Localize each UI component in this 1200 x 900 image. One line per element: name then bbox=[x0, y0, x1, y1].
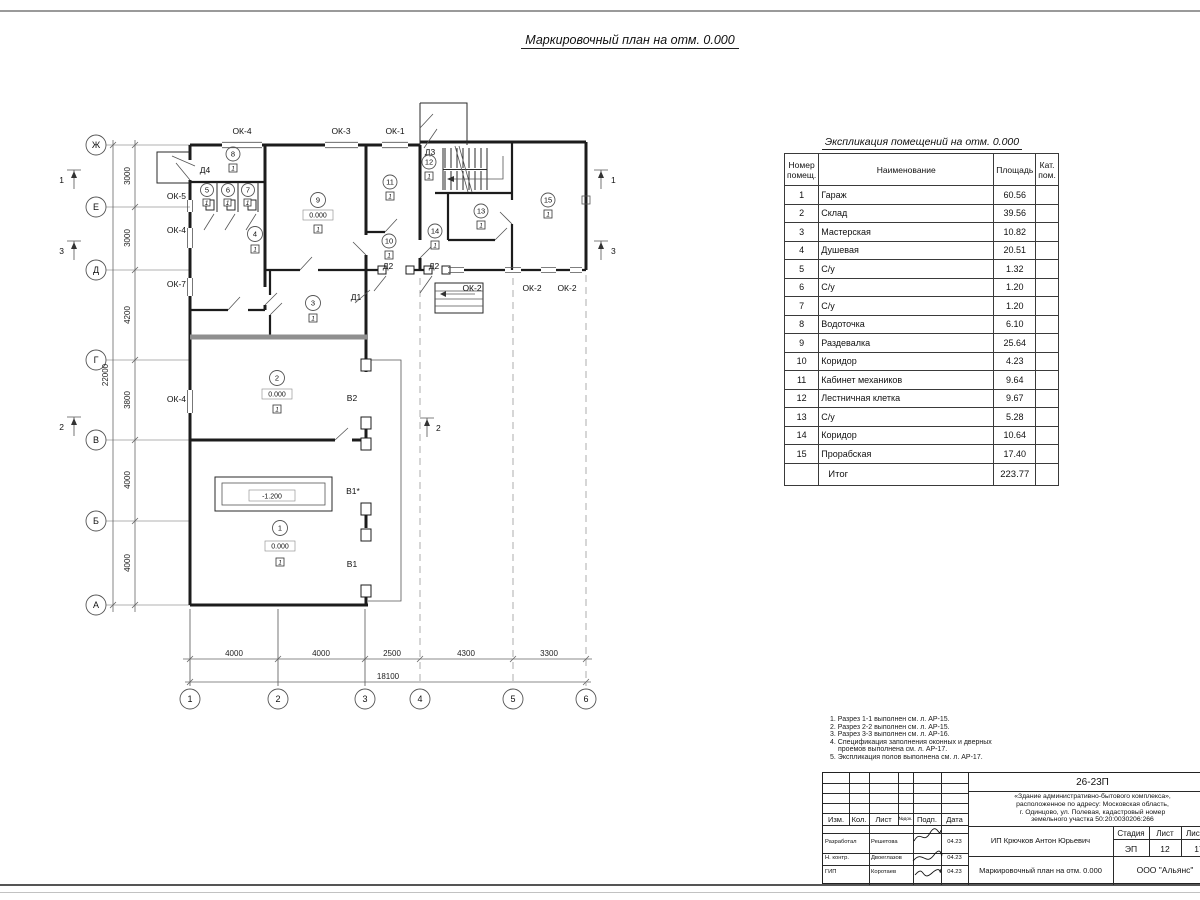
stamp-line bbox=[968, 826, 1200, 827]
col-header-number: Номер помещ. bbox=[785, 154, 819, 186]
sheet-number: 12 bbox=[1149, 844, 1181, 854]
doc-number: 26-23П bbox=[968, 777, 1200, 788]
stamp-col-izm: Изм. bbox=[823, 815, 849, 824]
steps-arrow-head bbox=[440, 291, 446, 297]
door-label: Д4 bbox=[200, 165, 211, 175]
walls bbox=[190, 142, 586, 605]
room-number: 13 bbox=[477, 207, 485, 216]
table-row: 13С/у5.28 bbox=[785, 408, 1059, 427]
table-row: 2Склад39.56 bbox=[785, 204, 1059, 223]
object-line: земельного участка 50:20:0030206:266 bbox=[970, 816, 1200, 824]
table-row: 7С/у1.20 bbox=[785, 297, 1059, 316]
object-line: «Здание административно-бытового комплек… bbox=[970, 793, 1200, 801]
signature bbox=[915, 869, 941, 876]
stage-value: ЭП bbox=[1113, 844, 1149, 854]
stamp-name: Коротаев bbox=[871, 869, 896, 875]
dim-bottom-total: 18100 bbox=[377, 672, 400, 681]
stamp-line bbox=[823, 833, 968, 834]
axis-bubbles: Ж Е Д Г В Б А 1 2 3 4 5 6 bbox=[86, 135, 596, 709]
table-row: 10Коридор4.23 bbox=[785, 352, 1059, 371]
room-number: 7 bbox=[246, 186, 250, 195]
room-number: 9 bbox=[316, 196, 320, 205]
floor-type-mark: 1 bbox=[278, 560, 282, 567]
window-label: ОК-1 bbox=[385, 126, 404, 136]
room-number: 6 bbox=[226, 186, 230, 195]
stamp-col-podp: Подп. bbox=[913, 815, 941, 824]
title-block: Изм. Кол. Лист №док. Подп. Дата Разработ… bbox=[822, 772, 1200, 884]
company-name: ООО "Альянс" bbox=[1113, 865, 1200, 875]
floor-type-mark: 1 bbox=[246, 200, 250, 207]
dim-bottom: 2500 bbox=[383, 649, 401, 658]
gate-label: В1* bbox=[346, 486, 360, 496]
pit-level-mark: -1.200 bbox=[249, 490, 295, 501]
stamp-line bbox=[823, 865, 968, 866]
staircase bbox=[443, 146, 503, 192]
gate-label: В2 bbox=[347, 393, 358, 403]
room-number: 11 bbox=[386, 178, 394, 187]
table-row: 1Гараж60.56 bbox=[785, 186, 1059, 205]
note-line: 5. Экспликация полов выполнена см. л. АР… bbox=[830, 754, 1008, 762]
axis-row-label: В bbox=[93, 435, 99, 445]
stamp-line bbox=[1113, 839, 1200, 840]
note-line: 2. Разрез 2-2 выполнен см. л. АР-15. bbox=[830, 724, 1008, 732]
signature bbox=[914, 829, 941, 841]
stamp-col-kol: Кол. bbox=[849, 815, 869, 824]
explication-header-row: Номер помещ. Наименование Площадь Кат. п… bbox=[785, 154, 1059, 186]
signatures bbox=[911, 827, 943, 885]
sheet-label: Лист bbox=[1149, 829, 1181, 838]
table-row: 9Раздевалка25.64 bbox=[785, 334, 1059, 353]
floor-type-mark: 1 bbox=[433, 243, 437, 250]
floor-type-mark: 1 bbox=[253, 247, 257, 254]
axis-col-label: 6 bbox=[583, 694, 588, 704]
axis-row-label: Е bbox=[93, 202, 99, 212]
stamp-line bbox=[823, 793, 968, 794]
note-line: 1. Разрез 1-1 выполнен см. л. АР-15. bbox=[830, 716, 1008, 724]
dim-left: 4200 bbox=[123, 306, 132, 324]
table-row: 5С/у1.32 bbox=[785, 260, 1059, 279]
sheet-edge-line bbox=[0, 892, 1200, 893]
stamp-role: Н. контр. bbox=[825, 855, 849, 861]
stamp-line bbox=[823, 853, 968, 854]
floor-type-mark: 1 bbox=[226, 200, 230, 207]
dim-left: 4000 bbox=[123, 471, 132, 489]
floor-type-mark: 1 bbox=[205, 200, 209, 207]
col-header-category: Кат. пом. bbox=[1036, 154, 1059, 186]
table-row: 3Мастерская10.82 bbox=[785, 223, 1059, 242]
level-mark: 0.000 bbox=[271, 544, 289, 551]
door-label: Д2 bbox=[383, 261, 394, 271]
axis-row-label: Ж bbox=[92, 140, 101, 150]
gate-label: В1 bbox=[347, 559, 358, 569]
stamp-date: 04.23 bbox=[941, 839, 968, 845]
dim-bottom: 4300 bbox=[457, 649, 475, 658]
door-label: Д2 bbox=[429, 261, 440, 271]
axis-row-label: А bbox=[93, 600, 99, 610]
table-row: 6С/у1.20 bbox=[785, 278, 1059, 297]
level-mark: -1.200 bbox=[262, 494, 282, 501]
col-header-area: Площадь bbox=[994, 154, 1036, 186]
room-number: 15 bbox=[544, 196, 552, 205]
axis-row-label: Д bbox=[93, 265, 99, 275]
stamp-col-list: Лист bbox=[869, 815, 898, 824]
section-mark-label: 3 bbox=[59, 246, 64, 256]
room-number: 12 bbox=[425, 158, 433, 167]
stamp-line bbox=[823, 813, 968, 814]
axis-col-label: 2 bbox=[275, 694, 280, 704]
room-number: 14 bbox=[431, 227, 439, 236]
stamp-date: 04.23 bbox=[941, 855, 968, 861]
dim-left: 4000 bbox=[123, 554, 132, 572]
window-label: ОК-2 bbox=[462, 283, 481, 293]
door-leaves bbox=[172, 114, 512, 440]
sheets-total: 17 bbox=[1181, 844, 1200, 854]
stamp-line bbox=[968, 791, 1200, 792]
room-number: 4 bbox=[253, 230, 257, 239]
window-label: ОК-2 bbox=[557, 283, 576, 293]
stamp-sheet-title: Маркировочный план на отм. 0.000 bbox=[968, 866, 1113, 875]
notes-block: 1. Разрез 1-1 выполнен см. л. АР-15. 2. … bbox=[830, 716, 1008, 761]
dim-bottom: 3300 bbox=[540, 649, 558, 658]
room-number: 1 bbox=[278, 524, 282, 533]
explication-title: Экспликация помещений на отм. 0.000 bbox=[790, 132, 1054, 150]
stage-label: Стадия bbox=[1113, 829, 1149, 838]
stamp-line bbox=[968, 856, 1200, 857]
table-row: 12Лестничная клетка9.67 bbox=[785, 389, 1059, 408]
section-mark-label: 2 bbox=[59, 422, 64, 432]
room-number: 3 bbox=[311, 299, 315, 308]
section-mark-label: 1 bbox=[611, 175, 616, 185]
gate-labels: В2 В1* В1 bbox=[346, 393, 360, 569]
dim-left: 3000 bbox=[123, 229, 132, 247]
stamp-name: Двоеглазов bbox=[871, 855, 902, 861]
floor-type-mark: 1 bbox=[231, 166, 235, 173]
room-number: 5 bbox=[205, 186, 209, 195]
table-total-row: Итог223.77 bbox=[785, 463, 1059, 485]
section-mark-label: 1 bbox=[59, 175, 64, 185]
window-label: ОК-3 bbox=[331, 126, 350, 136]
section-marks: 1 3 2 1 3 2 bbox=[59, 170, 616, 437]
axis-col-label: 4 bbox=[417, 694, 422, 704]
dim-left-total: 22000 bbox=[101, 363, 110, 386]
object-line: расположенное по адресу: Московская обла… bbox=[970, 801, 1200, 809]
axis-col-label: 1 bbox=[187, 694, 192, 704]
explication-table-wrap: Номер помещ. Наименование Площадь Кат. п… bbox=[784, 153, 1059, 486]
stamp-line bbox=[869, 773, 870, 885]
explication-title-text: Экспликация помещений на отм. 0.000 bbox=[822, 136, 1022, 150]
axis-col-label: 5 bbox=[510, 694, 515, 704]
dim-bottom: 4000 bbox=[312, 649, 330, 658]
section-mark-label: 2 bbox=[436, 423, 441, 433]
table-row: 4Душевая20.51 bbox=[785, 241, 1059, 260]
window-label: ОК-2 bbox=[522, 283, 541, 293]
window-labels: ОК-4 ОК-3 ОК-1 ОК-5 ОК-4 ОК-7 ОК-4 ОК-2 … bbox=[167, 126, 577, 404]
stamp-role: ГИП bbox=[825, 869, 836, 875]
floor-type-mark: 1 bbox=[311, 316, 315, 323]
dim-bottom: 4000 bbox=[225, 649, 243, 658]
axis-col-label: 3 bbox=[362, 694, 367, 704]
stamp-col-ndok: №док. bbox=[898, 817, 913, 822]
stamp-name: Решетова bbox=[871, 839, 898, 845]
note-line: 3. Разрез 3-3 выполнен см. л. АР-16. bbox=[830, 731, 1008, 739]
table-row: 11Кабинет механиков9.64 bbox=[785, 371, 1059, 390]
window-label: ОК-4 bbox=[167, 394, 186, 404]
stamp-role: Разработал bbox=[825, 839, 857, 845]
axis-row-label: Г bbox=[94, 355, 99, 365]
sheets-label: Листов bbox=[1181, 829, 1200, 838]
axis-row-label: Б bbox=[93, 516, 99, 526]
floor-type-mark: 1 bbox=[388, 194, 392, 201]
signature bbox=[913, 851, 942, 861]
stamp-line bbox=[823, 783, 968, 784]
note-line: 4. Спецификация заполнения оконных и две… bbox=[830, 739, 1008, 754]
window-label: ОК-7 bbox=[167, 279, 186, 289]
table-row: 14Коридор10.64 bbox=[785, 426, 1059, 445]
floor-plan: Ж Е Д Г В Б А 1 2 3 4 5 6 3000 3000 4200… bbox=[0, 0, 760, 760]
sheet-border-bottom bbox=[0, 884, 1200, 886]
stamp-line bbox=[823, 825, 968, 826]
section-mark-label: 3 bbox=[611, 246, 616, 256]
floor-type-mark: 1 bbox=[275, 407, 279, 414]
dim-left: 3000 bbox=[123, 167, 132, 185]
window-label: ОК-4 bbox=[232, 126, 251, 136]
window-label: ОК-5 bbox=[167, 191, 186, 201]
drawing-sheet: Маркировочный план на отм. 0.000 bbox=[0, 0, 1200, 900]
door-label: Д1 bbox=[351, 292, 362, 302]
thin-structures bbox=[157, 103, 590, 601]
floor-type-mark: 1 bbox=[316, 227, 320, 234]
room-number: 2 bbox=[275, 374, 279, 383]
room-number: 8 bbox=[231, 150, 235, 159]
stamp-line bbox=[823, 803, 968, 804]
client-name: ИП Крючков Антон Юрьевич bbox=[968, 836, 1113, 845]
floor-type-mark: 1 bbox=[387, 253, 391, 260]
room-number: 10 bbox=[385, 237, 393, 246]
object-description: «Здание административно-бытового комплек… bbox=[970, 793, 1200, 824]
dimension-lines bbox=[110, 140, 592, 685]
dim-left: 3800 bbox=[123, 391, 132, 409]
table-row: 8Водоточка6.10 bbox=[785, 315, 1059, 334]
floor-type-mark: 1 bbox=[546, 212, 550, 219]
level-mark: 0.000 bbox=[268, 392, 286, 399]
floor-type-mark: 1 bbox=[427, 174, 431, 181]
floor-type-mark: 1 bbox=[479, 223, 483, 230]
table-row: 15Прорабская17.40 bbox=[785, 445, 1059, 464]
col-header-name: Наименование bbox=[819, 154, 994, 186]
object-line: г. Одинцово, ул. Полевая, кадастровый но… bbox=[970, 809, 1200, 817]
stamp-col-data: Дата bbox=[941, 815, 968, 824]
stamp-date: 04.23 bbox=[941, 869, 968, 875]
explication-table: Номер помещ. Наименование Площадь Кат. п… bbox=[784, 153, 1059, 486]
window-label: ОК-4 bbox=[167, 225, 186, 235]
level-mark: 0.000 bbox=[309, 213, 327, 220]
